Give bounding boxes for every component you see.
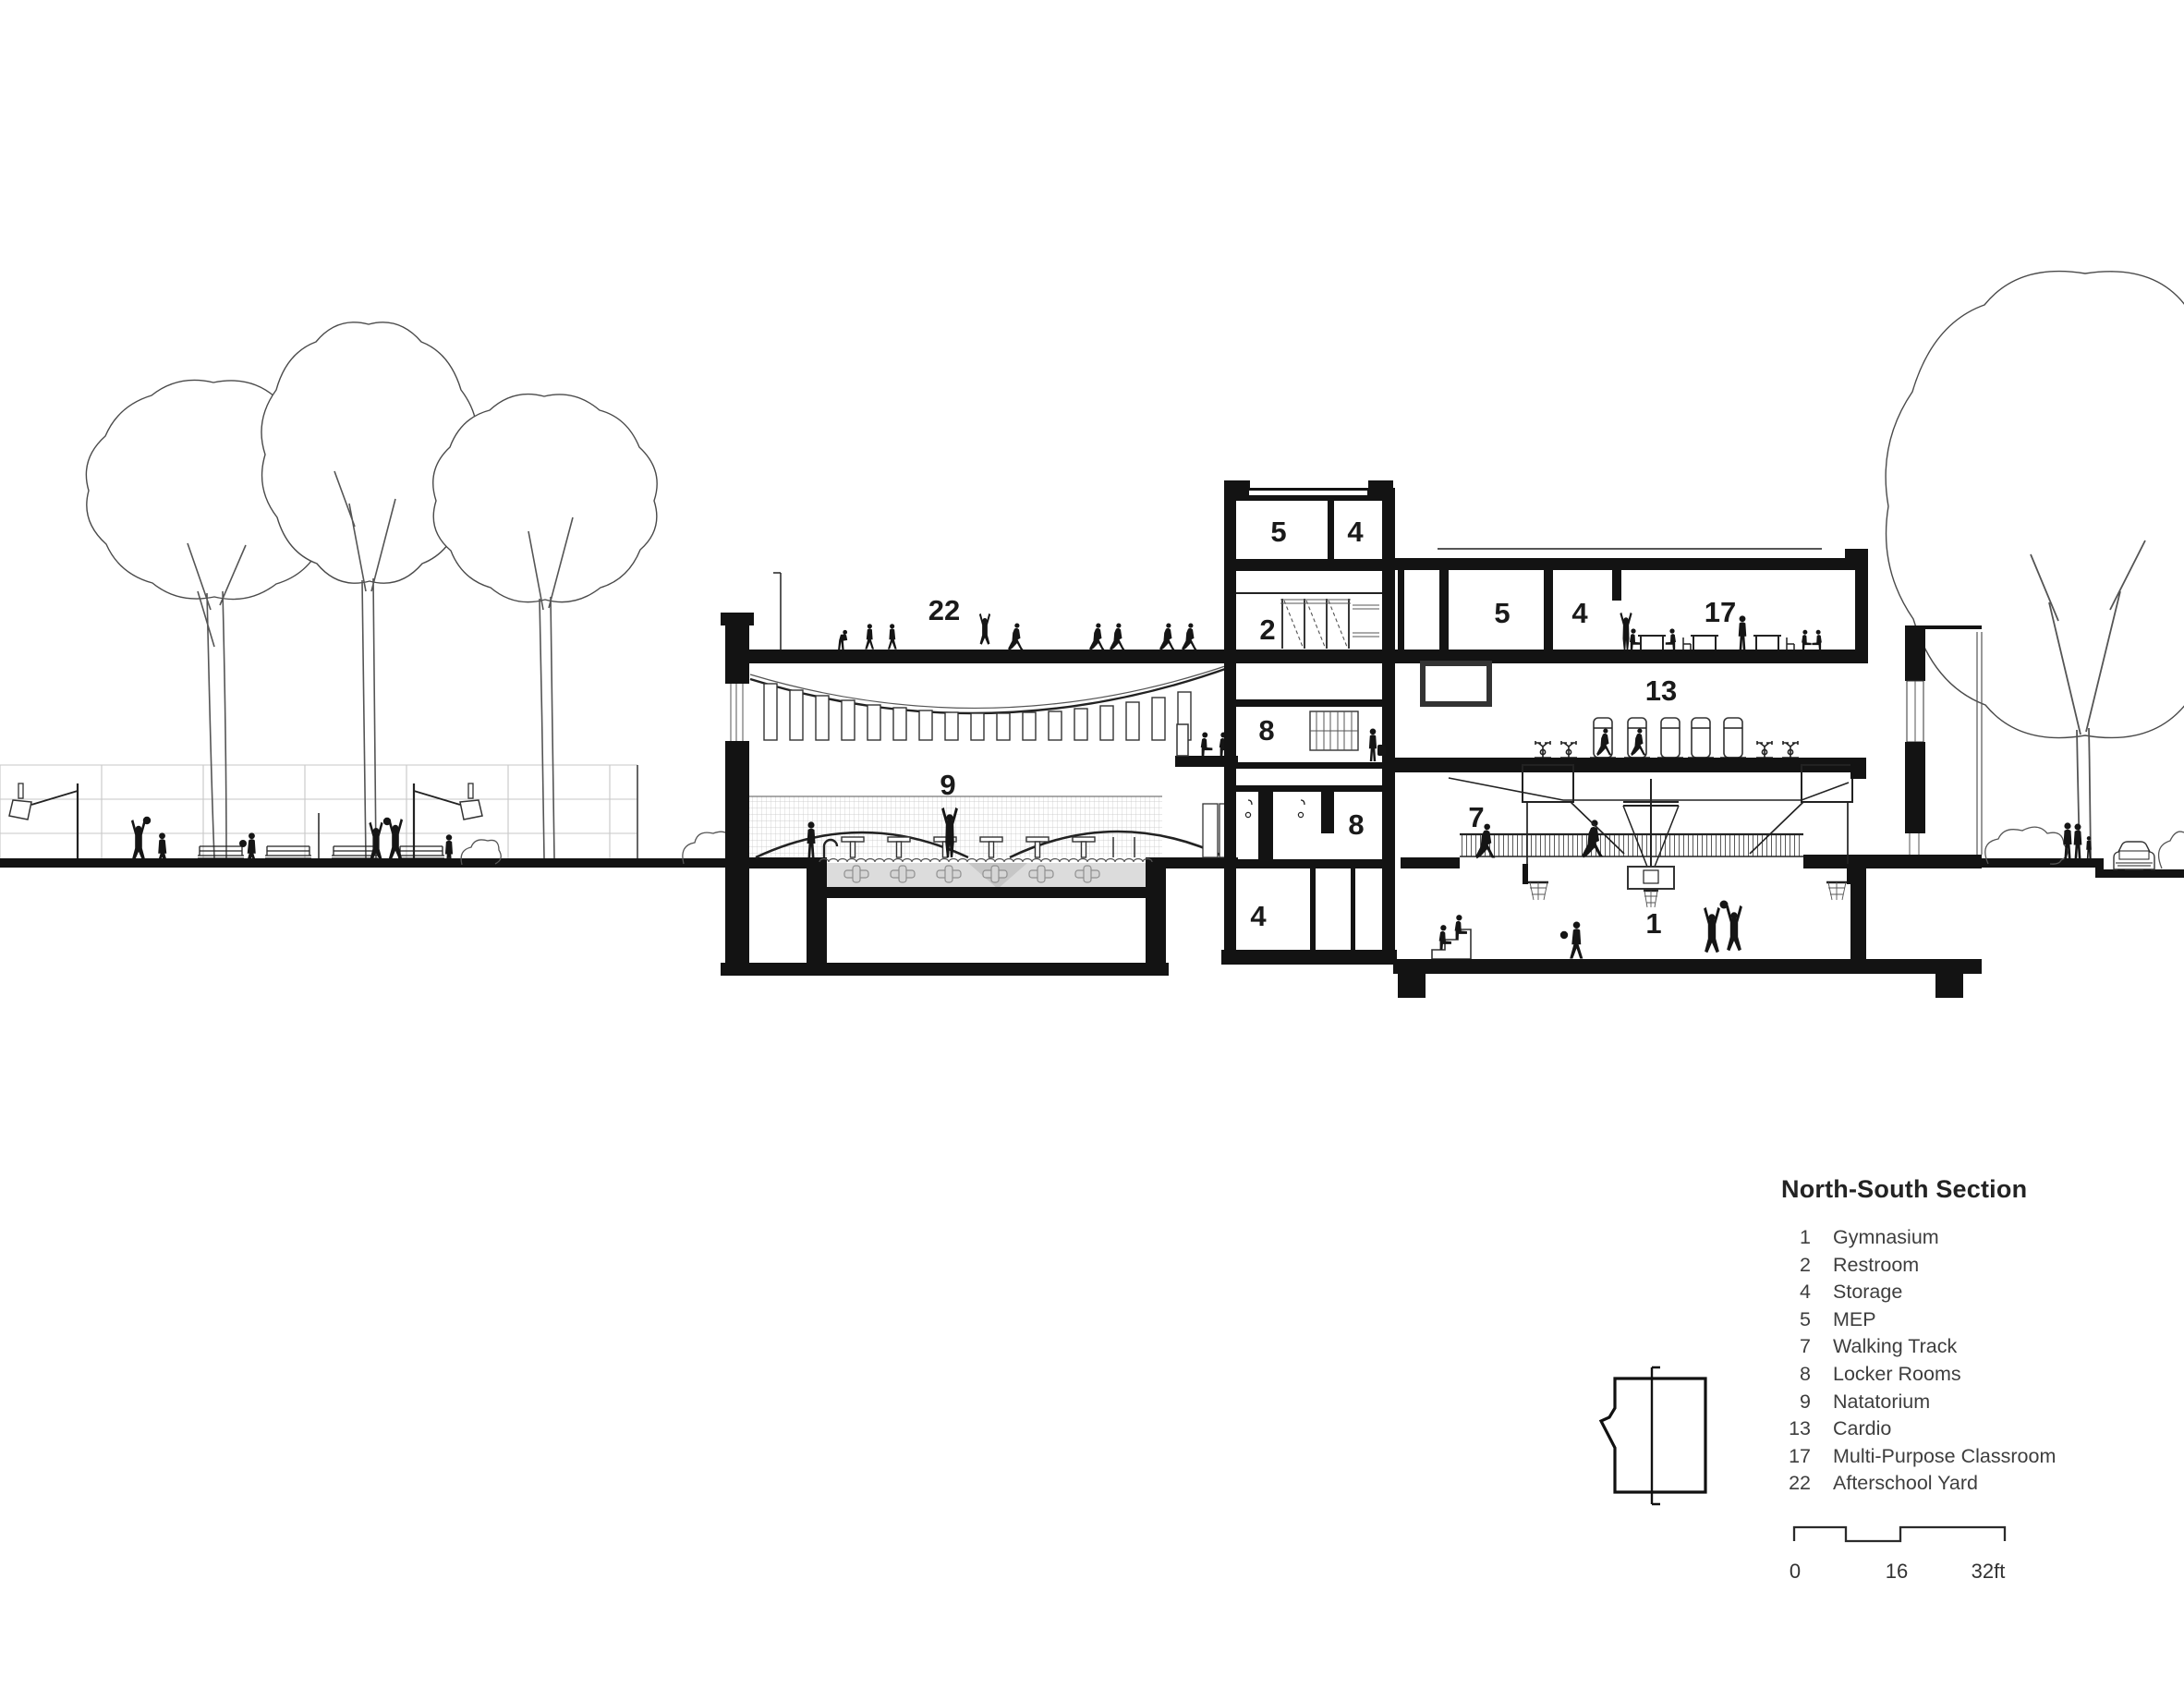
- tree-canopy: [433, 395, 657, 602]
- section-drawing-sheet: 22 9 5 4 2 8 8 4 5 4 17 13 7 1 0 16 32ft…: [0, 0, 2184, 1688]
- room-label-storage-basement: 4: [1250, 900, 1267, 932]
- foundation: [721, 963, 1169, 976]
- legend-item: 8Locker Rooms: [1781, 1363, 2169, 1390]
- scale-start: 0: [1790, 1560, 1801, 1583]
- room-label-mep-penthouse: 5: [1270, 516, 1286, 548]
- light-pole: [9, 783, 83, 863]
- main-roof-slab: [1393, 558, 1868, 570]
- locker-bank: [1310, 711, 1358, 750]
- cardio-floor-slab: [1393, 758, 1866, 772]
- scale-bar: 0 16 32ft: [1790, 1527, 2005, 1583]
- legend-item: 13Cardio: [1781, 1417, 2169, 1445]
- room-label-mep-upper: 5: [1494, 597, 1510, 629]
- natatorium-block: [721, 573, 1238, 976]
- person-icon: [388, 819, 403, 860]
- room-label-lockers: 8: [1258, 714, 1274, 747]
- legend-item: 4Storage: [1781, 1281, 2169, 1308]
- person-icon: [1201, 733, 1213, 756]
- left-trees: [86, 322, 657, 858]
- room-label-cardio: 13: [1645, 674, 1677, 707]
- room-label-afterschool-yard: 22: [928, 594, 960, 626]
- pool-floor-slab: [827, 887, 1146, 898]
- key-plan: [1601, 1367, 1705, 1504]
- roof-deck-slab: [725, 650, 1238, 663]
- room-label-natatorium: 9: [940, 769, 955, 801]
- section-cut-line: [1652, 1367, 1660, 1504]
- restroom-stalls: [1280, 599, 1379, 649]
- room-label-storage-upper: 4: [1571, 597, 1588, 629]
- room-label-storage-penthouse: 4: [1347, 516, 1364, 548]
- gym-ceiling: [1449, 778, 1849, 800]
- left-court-furniture: [9, 783, 482, 865]
- legend-item: 22Afterschool Yard: [1781, 1472, 2169, 1500]
- parapet-cap: [721, 613, 754, 625]
- track-railing: [1460, 834, 1803, 856]
- core-tower: [1221, 480, 1397, 965]
- legend-item: 7Walking Track: [1781, 1335, 2169, 1363]
- cardio-equipment: [1535, 718, 1799, 758]
- room-label-lockers-lower: 8: [1348, 808, 1364, 841]
- right-tree: [1886, 272, 2184, 859]
- duffel-bag: [1377, 745, 1386, 756]
- legend-item: 1Gymnasium: [1781, 1226, 2169, 1254]
- gym-floor-slab: [1393, 959, 1982, 974]
- shower-stalls: [1245, 792, 1334, 859]
- roof-deck-children: [838, 613, 1197, 650]
- legend-list: 1Gymnasium 2Restroom 4Storage 5MEP 7Walk…: [1781, 1226, 2169, 1500]
- room-label-walking-track: 7: [1468, 801, 1484, 833]
- car: [2114, 842, 2154, 873]
- basketball-hoop: [1750, 765, 1852, 900]
- basketball-hoop: [1523, 765, 1624, 900]
- legend-panel: North-South Section 1Gymnasium 2Restroom…: [1781, 1175, 2169, 1500]
- person-icon: [2074, 824, 2082, 858]
- scale-end: 32ft: [1972, 1560, 2006, 1583]
- stair-enclosure: [1423, 663, 1489, 704]
- person-icon: [1369, 728, 1377, 761]
- right-block: [1393, 549, 1982, 998]
- legend-item: 5MEP: [1781, 1308, 2169, 1336]
- room-label-gymnasium: 1: [1645, 907, 1661, 940]
- legend-item: 9Natatorium: [1781, 1390, 2169, 1418]
- legend-item: 17Multi-Purpose Classroom: [1781, 1445, 2169, 1473]
- legend-item: 2Restroom: [1781, 1254, 2169, 1281]
- door: [1203, 804, 1218, 857]
- legend-title: North-South Section: [1781, 1175, 2169, 1204]
- person-icon: [131, 820, 146, 861]
- scale-mid: 16: [1886, 1560, 1908, 1583]
- gym-people: [1432, 901, 1742, 960]
- room-label-classroom: 17: [1705, 596, 1736, 628]
- room-label-restroom: 2: [1259, 613, 1275, 646]
- water-line: [819, 859, 1152, 862]
